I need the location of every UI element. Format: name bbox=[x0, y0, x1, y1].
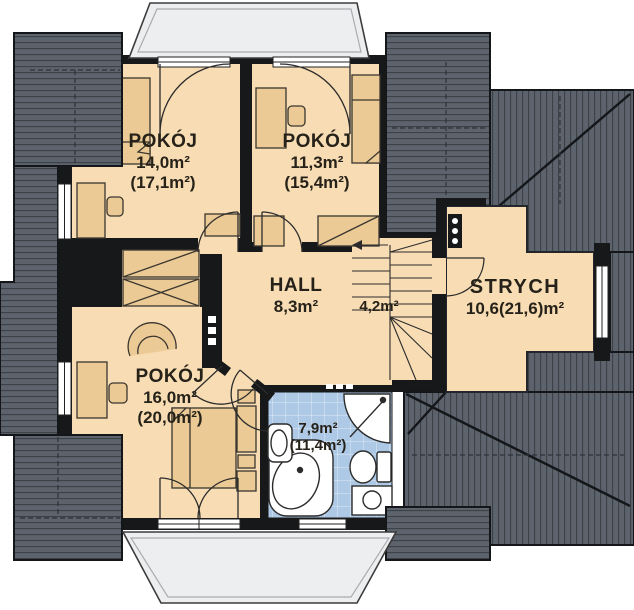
roof-right-side bbox=[610, 252, 634, 358]
balcony-double-door-window bbox=[158, 519, 240, 529]
room3-label: POKÓJ 16,0m² (20,0m²) bbox=[135, 366, 204, 427]
cabinet bbox=[205, 214, 240, 236]
single-bed bbox=[352, 75, 380, 163]
room2-area: 11,3m² bbox=[282, 153, 351, 173]
roof-left-middle bbox=[0, 166, 58, 435]
radiator bbox=[448, 214, 462, 248]
room3-area-brackets: (20,0m²) bbox=[135, 408, 204, 428]
desk bbox=[77, 183, 105, 238]
cabinet bbox=[237, 471, 256, 491]
bathroom-label: 7,9m² (11,4m²) bbox=[290, 420, 347, 455]
nightstand bbox=[238, 390, 255, 403]
room3-name: POKÓJ bbox=[135, 366, 204, 388]
wardrobe bbox=[237, 406, 256, 452]
room1-name: POKÓJ bbox=[128, 131, 197, 153]
balcony-door-window bbox=[158, 57, 230, 67]
window bbox=[58, 184, 71, 239]
window bbox=[299, 519, 346, 529]
room1-area-brackets: (17,1m²) bbox=[128, 173, 197, 193]
radiator bbox=[202, 312, 222, 346]
washbasin bbox=[268, 424, 292, 462]
roof-left-upper bbox=[14, 33, 122, 166]
hall-name: HALL bbox=[270, 275, 323, 297]
office-chair bbox=[109, 383, 127, 403]
strych-label: STRYCH 10,6(21,6)m² bbox=[466, 276, 564, 319]
office-chair bbox=[107, 197, 123, 216]
balcony-top bbox=[129, 3, 369, 58]
bathroom-area: 7,9m² bbox=[290, 420, 347, 437]
roof-right-bottom bbox=[386, 507, 490, 560]
strych-top-wall bbox=[436, 198, 486, 206]
hall-area: 8,3m² bbox=[270, 297, 323, 317]
hall-label: HALL 8,3m² bbox=[270, 275, 323, 317]
room2-label: POKÓJ 11,3m² (15,4m²) bbox=[282, 131, 351, 192]
cabinet bbox=[254, 216, 284, 246]
room1-area: 14,0m² bbox=[128, 153, 197, 173]
balcony-door-window bbox=[273, 57, 350, 67]
window bbox=[58, 362, 71, 415]
window bbox=[596, 266, 608, 338]
room2-area-brackets: (15,4m²) bbox=[282, 173, 351, 193]
stairs-label: 4,2m² bbox=[359, 298, 398, 315]
shower-cabin bbox=[344, 394, 390, 443]
roof-right-mid bbox=[527, 352, 634, 392]
strych-door-gap bbox=[436, 258, 446, 294]
room3-area: 16,0m² bbox=[135, 388, 204, 408]
strych-name: STRYCH bbox=[466, 276, 564, 299]
office-chair bbox=[288, 106, 305, 126]
low-wardrobe bbox=[318, 216, 379, 246]
room1-door-gap bbox=[198, 238, 238, 254]
stairs-area: 4,2m² bbox=[359, 298, 398, 315]
desk bbox=[77, 362, 107, 418]
vent-grille bbox=[326, 384, 353, 389]
room1-label: POKÓJ 14,0m² (17,1m²) bbox=[128, 131, 197, 192]
roof-left-lower bbox=[14, 435, 122, 560]
strych-area: 10,6(21,6)m² bbox=[466, 299, 564, 319]
bathroom-area-brackets: (11,4m²) bbox=[290, 437, 347, 454]
nightstand bbox=[238, 455, 255, 468]
strych-left-wall bbox=[436, 204, 446, 392]
toilet bbox=[350, 451, 391, 483]
floor-plan: POKÓJ 14,0m² (17,1m²) POKÓJ 11,3m² (15,4… bbox=[0, 0, 634, 610]
balcony-bottom bbox=[123, 532, 396, 603]
room2-name: POKÓJ bbox=[282, 131, 351, 153]
